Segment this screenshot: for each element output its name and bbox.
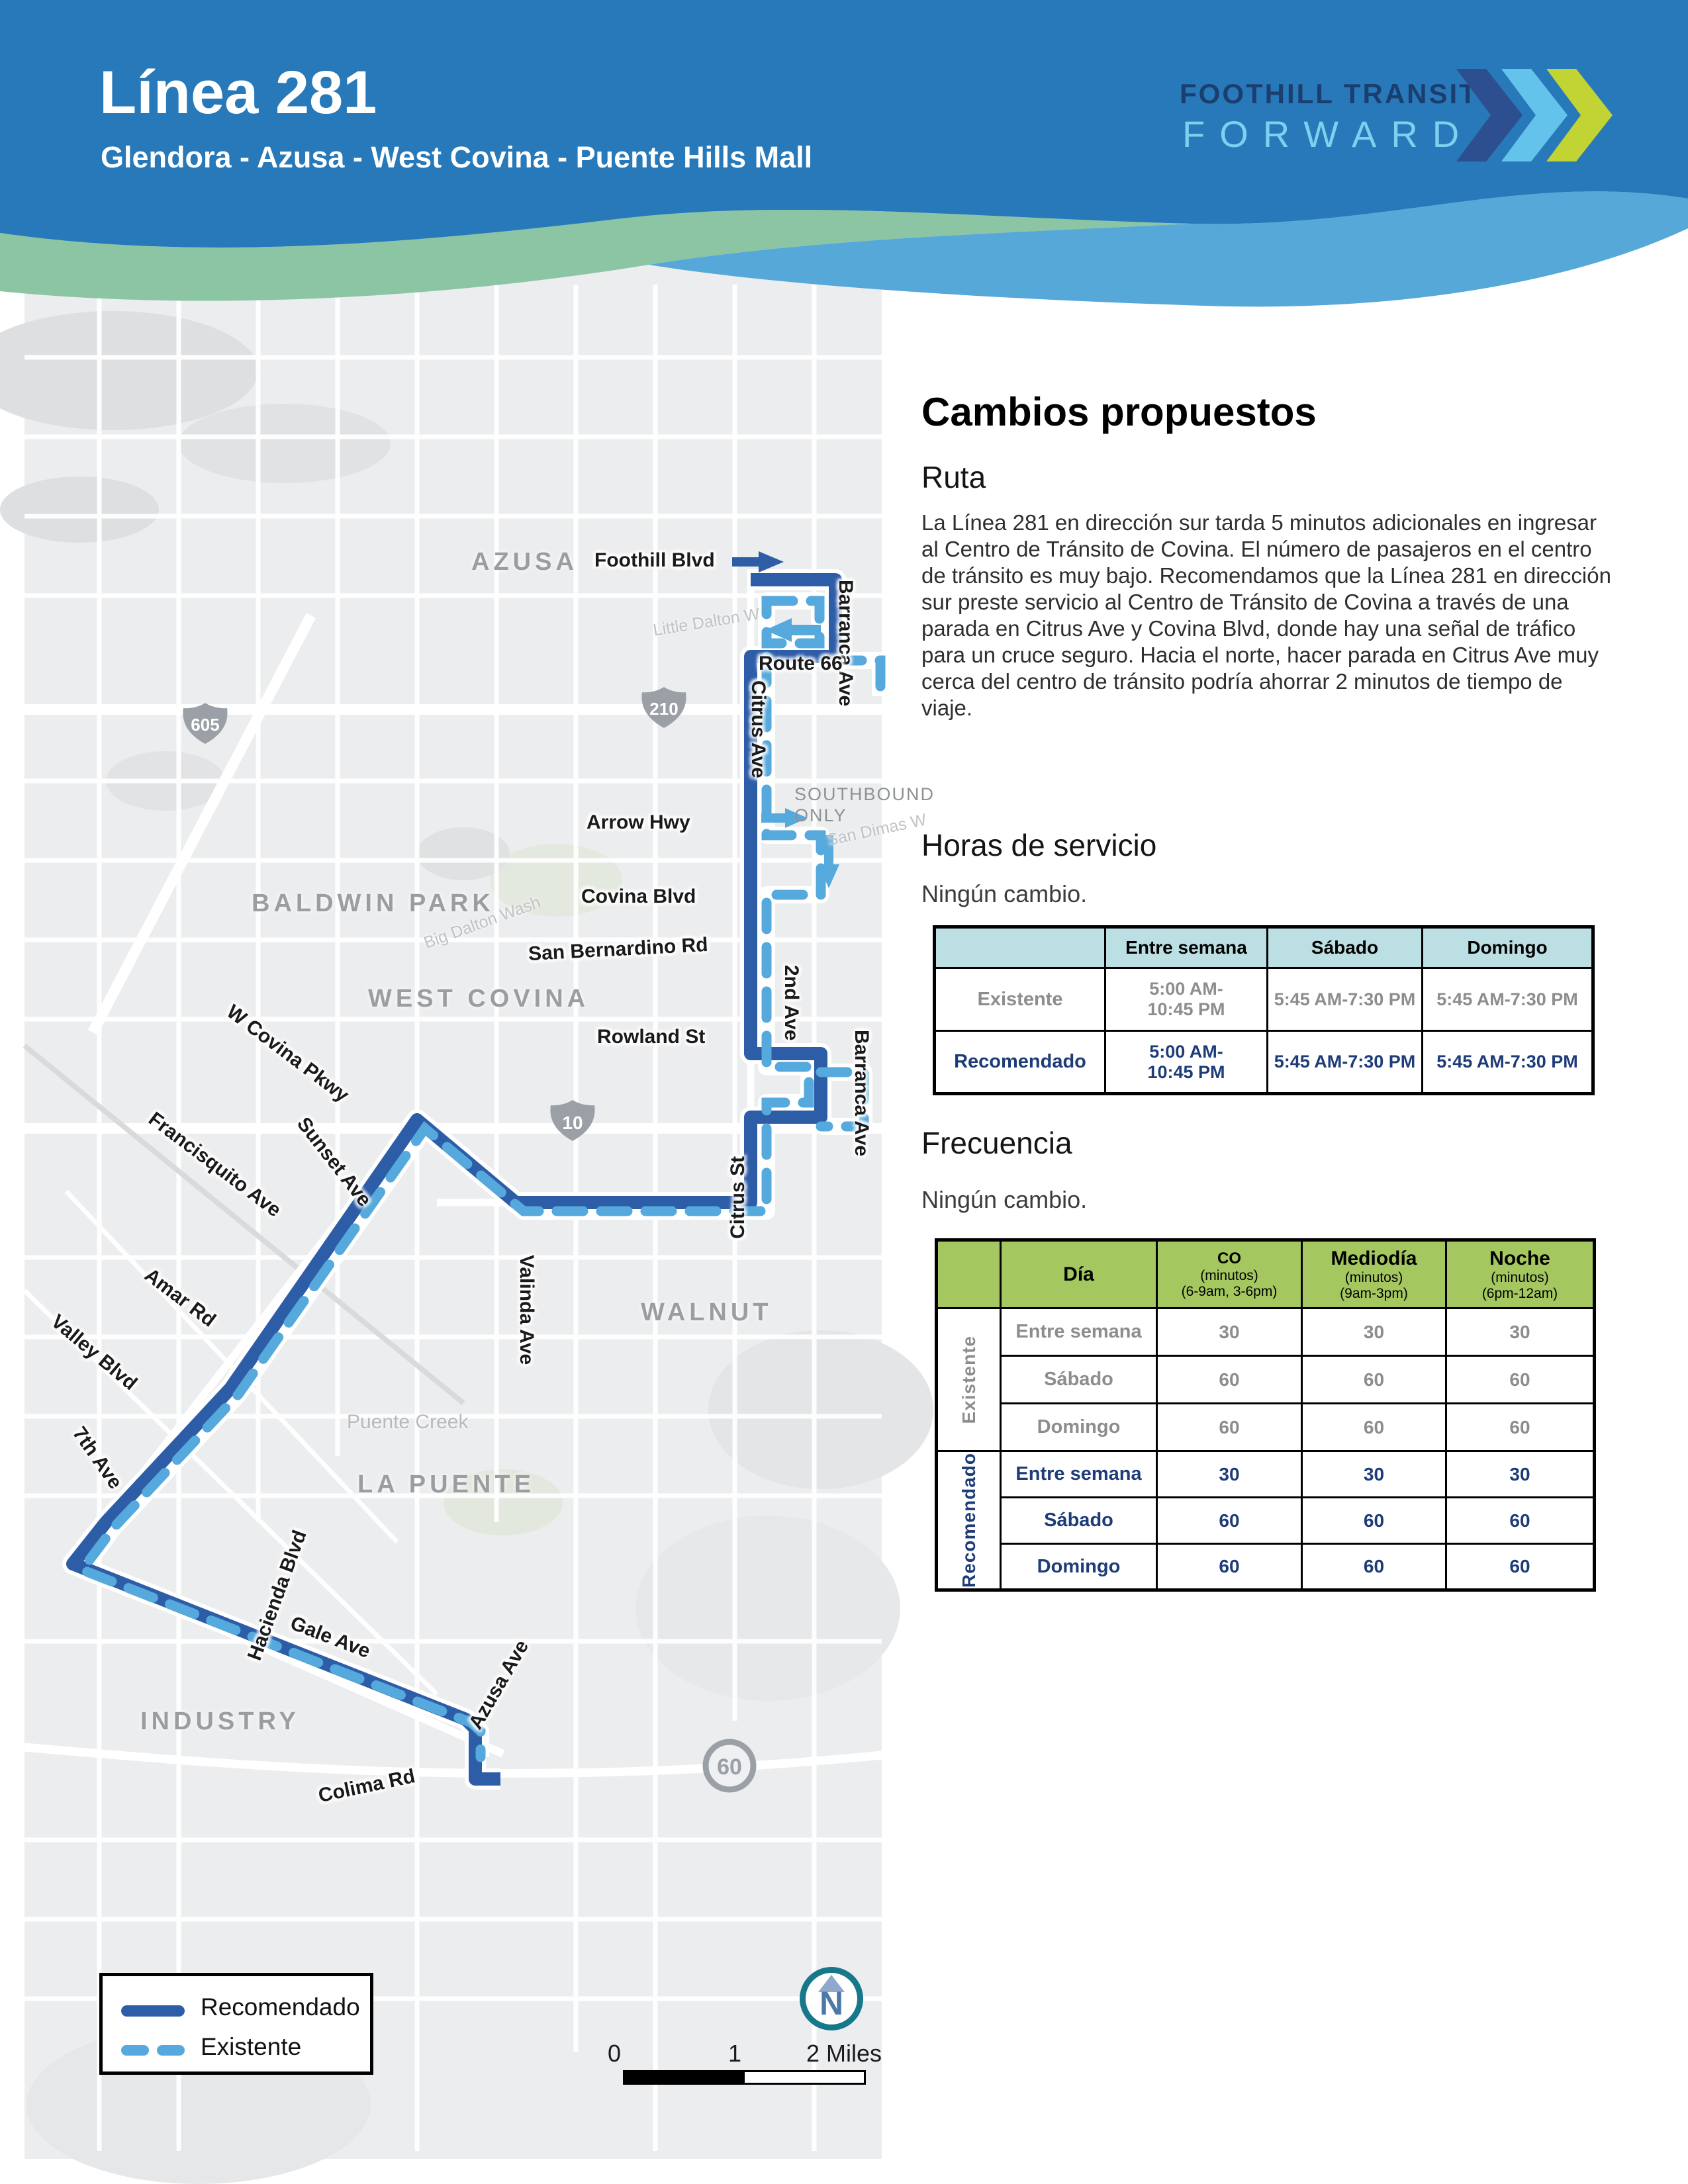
frequency-table: Día CO (minutos) (6-9am, 3-6pm) Mediodía… (935, 1238, 1596, 1592)
legend-existing-swatch2 (157, 2045, 185, 2056)
scale-bar (623, 2070, 866, 2085)
southbound-line2: ONLY (794, 805, 935, 826)
route-subtitle: Glendora - Azusa - West Covina - Puente … (101, 140, 812, 175)
hours-table: Entre semana Sábado Domingo Existente 5:… (933, 925, 1595, 1095)
southbound-only-note: SOUTHBOUND ONLY (794, 784, 935, 826)
city-label-azusa: AZUSA (471, 548, 578, 576)
hours-existing-sunday: 5:45 AM-7:30 PM (1423, 968, 1593, 1031)
legend-recommended-label: Recomendado (201, 1993, 360, 2021)
hours-recommended-weekday: 5:00 AM-10:45 PM (1132, 1042, 1241, 1083)
street-label-valinda-ave: Valinda Ave (515, 1255, 538, 1365)
hours-header-saturday: Sábado (1268, 927, 1423, 968)
scale-zero: 0 (608, 2040, 621, 2068)
street-label-foothill-blvd: Foothill Blvd (594, 549, 715, 572)
freq-header-midday: Mediodía (minutos) (9am-3pm) (1302, 1240, 1446, 1308)
hours-recommended-label: Recomendado (935, 1031, 1105, 1094)
street-label-citrus-st: Citrus St (727, 1156, 749, 1239)
street-label-barranca-ave-south: Barranca Ave (850, 1030, 872, 1156)
route-paragraph: La Línea 281 en dirección sur tarda 5 mi… (921, 510, 1617, 721)
freq-header-day: Día (1001, 1240, 1157, 1308)
hours-section-heading: Horas de servicio (921, 827, 1156, 863)
street-label-arrow-hwy: Arrow Hwy (586, 811, 690, 834)
city-label-west-covina: WEST COVINA (368, 985, 589, 1013)
hours-existing-weekday: 5:00 AM-10:45 PM (1132, 979, 1241, 1020)
street-label-citrus-ave: Citrus Ave (747, 680, 769, 778)
faint-label-puente-creek: Puente Creek (347, 1411, 468, 1433)
freq-row-recommended-saturday: Sábado 60 60 60 (937, 1498, 1595, 1544)
legend-recommended-swatch (121, 2005, 185, 2017)
hours-header-sunday: Domingo (1423, 927, 1593, 968)
hours-header-weekday: Entre semana (1105, 927, 1268, 968)
route-title: Línea 281 (99, 58, 377, 128)
freq-row-existing-weekday: Existente Entre semana 30 30 30 (937, 1308, 1595, 1356)
scale-one: 1 (728, 2040, 741, 2068)
street-label-2nd-ave: 2nd Ave (780, 965, 802, 1040)
freq-header-peak: CO (minutos) (6-9am, 3-6pm) (1157, 1240, 1302, 1308)
freq-row-existing-sunday: Domingo 60 60 60 (937, 1404, 1595, 1451)
frequency-section-heading: Frecuencia (921, 1125, 1072, 1161)
map-scale: 0 1 2 Miles (596, 2040, 887, 2093)
scale-bar-fill (625, 2072, 745, 2083)
city-label-walnut: WALNUT (641, 1298, 773, 1327)
legend-existing-label: Existente (201, 2033, 301, 2061)
flyer-page: 605 210 10 60 AZUSA BALDWIN PARK WEST CO… (0, 0, 1688, 2184)
freq-header-night: Noche (minutos) (6pm-12am) (1446, 1240, 1595, 1308)
street-label-covina-blvd: Covina Blvd (581, 886, 696, 908)
freq-row-recommended-sunday: Domingo 60 60 60 (937, 1544, 1595, 1590)
frequency-note: Ningún cambio. (921, 1186, 1087, 1214)
hours-existing-label: Existente (935, 968, 1105, 1031)
freq-row-recommended-weekday: Recomendado Entre semana 30 30 30 (937, 1451, 1595, 1498)
freq-group-existing: Existente (959, 1336, 980, 1424)
hours-row-recommended: Recomendado 5:00 AM-10:45 PM 5:45 AM-7:3… (935, 1031, 1593, 1094)
map-legend: Recomendado Existente (99, 1973, 373, 2075)
freq-header-blank (937, 1240, 1001, 1308)
city-label-industry: INDUSTRY (140, 1707, 300, 1736)
page-title: Cambios propuestos (921, 389, 1317, 435)
hours-header-blank (935, 927, 1105, 968)
hours-row-existing: Existente 5:00 AM-10:45 PM 5:45 AM-7:30 … (935, 968, 1593, 1031)
city-label-baldwin-park: BALDWIN PARK (252, 889, 494, 918)
legend-existing-swatch (121, 2045, 149, 2056)
southbound-line1: SOUTHBOUND (794, 784, 935, 805)
scale-two-miles: 2 Miles (806, 2040, 882, 2068)
street-label-route-66: Route 66 (759, 653, 843, 675)
city-label-la-puente: LA PUENTE (357, 1471, 535, 1499)
map-canvas (24, 263, 882, 2159)
logo-forward: FORWARD (1182, 113, 1474, 156)
route-section-heading: Ruta (921, 459, 986, 495)
hours-note: Ningún cambio. (921, 880, 1087, 908)
street-label-barranca-ave-north: Barranca Ave (834, 580, 857, 706)
hours-recommended-sunday: 5:45 AM-7:30 PM (1423, 1031, 1593, 1094)
north-arrow-icon: N (800, 1967, 863, 2030)
svg-text:N: N (820, 1985, 843, 2022)
logo-foothill-transit: FOOTHILL TRANSIT (1180, 78, 1478, 110)
hours-recommended-saturday: 5:45 AM-7:30 PM (1268, 1031, 1423, 1094)
freq-row-existing-saturday: Sábado 60 60 60 (937, 1356, 1595, 1404)
hours-existing-saturday: 5:45 AM-7:30 PM (1268, 968, 1423, 1031)
freq-group-recommended: Recomendado (959, 1453, 980, 1588)
street-label-rowland-st: Rowland St (597, 1026, 705, 1048)
